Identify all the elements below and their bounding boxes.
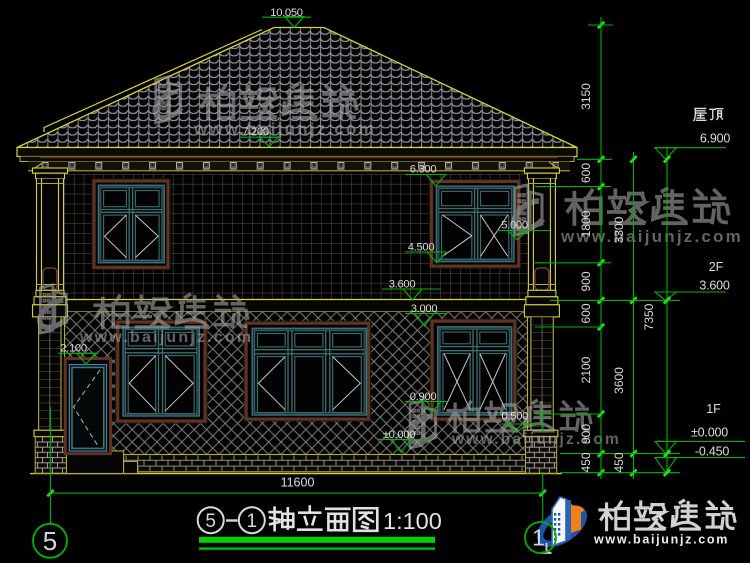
svg-text:3.600: 3.600 [389,279,416,291]
svg-text:±0.000: ±0.000 [383,429,415,441]
svg-text:www.baijunjz.com: www.baijunjz.com [593,533,729,547]
svg-text:6.900: 6.900 [700,132,731,146]
svg-text:600: 600 [579,303,593,323]
svg-text:5.000: 5.000 [501,220,528,232]
svg-text:0.900: 0.900 [410,391,437,403]
svg-text:11600: 11600 [281,476,315,490]
svg-text:1:100: 1:100 [383,508,442,534]
svg-text:7350: 7350 [642,303,656,330]
svg-text:450: 450 [579,452,593,472]
svg-text:1: 1 [532,525,545,551]
svg-text:450: 450 [612,452,626,472]
svg-text:0.500: 0.500 [502,411,529,423]
svg-text:5: 5 [43,526,57,556]
svg-text:1F: 1F [706,402,721,416]
svg-text:900: 900 [579,271,593,291]
svg-text:-0.450: -0.450 [695,445,729,459]
svg-text:2F: 2F [709,260,724,274]
svg-text:www.baijunjz.com: www.baijunjz.com [79,329,253,346]
svg-text:3300: 3300 [612,216,626,243]
svg-text:3600: 3600 [612,367,626,394]
svg-text:600: 600 [579,163,593,183]
svg-text:1800: 1800 [579,210,593,237]
svg-text:www.baijunjz.com: www.baijunjz.com [193,120,376,139]
svg-text:www.baijunjz.com: www.baijunjz.com [451,431,621,448]
svg-text:7.200: 7.200 [242,126,269,138]
svg-text:3.600: 3.600 [699,279,730,293]
svg-text:10.050: 10.050 [270,7,302,19]
svg-text:6.300: 6.300 [410,164,437,176]
svg-text:900: 900 [579,424,593,444]
svg-text:±0.000: ±0.000 [691,426,728,440]
svg-text:3150: 3150 [579,83,593,110]
svg-text:4.500: 4.500 [408,242,435,254]
svg-text:5: 5 [205,511,216,532]
svg-text:3.000: 3.000 [411,303,438,315]
svg-text:2100: 2100 [579,356,593,383]
svg-text:1: 1 [247,511,258,532]
svg-text:2.100: 2.100 [60,343,87,355]
